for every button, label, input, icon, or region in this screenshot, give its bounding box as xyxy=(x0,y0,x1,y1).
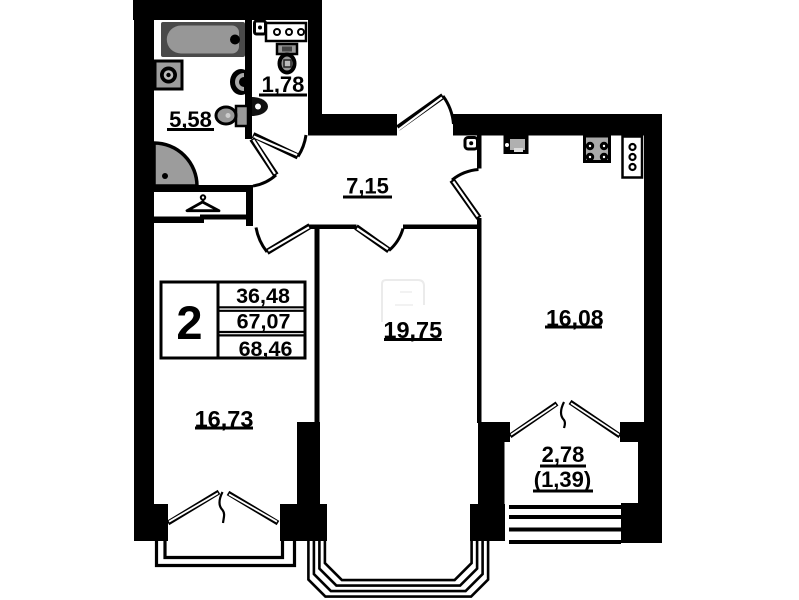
svg-text:2: 2 xyxy=(176,296,202,349)
svg-text:68,46: 68,46 xyxy=(239,337,293,361)
svg-text:2,78: 2,78 xyxy=(542,442,585,467)
svg-text:(1,39): (1,39) xyxy=(534,467,591,492)
svg-text:67,07: 67,07 xyxy=(237,310,291,334)
svg-text:7,15: 7,15 xyxy=(346,174,389,199)
svg-text:1,78: 1,78 xyxy=(262,72,305,97)
svg-text:36,48: 36,48 xyxy=(236,284,290,308)
